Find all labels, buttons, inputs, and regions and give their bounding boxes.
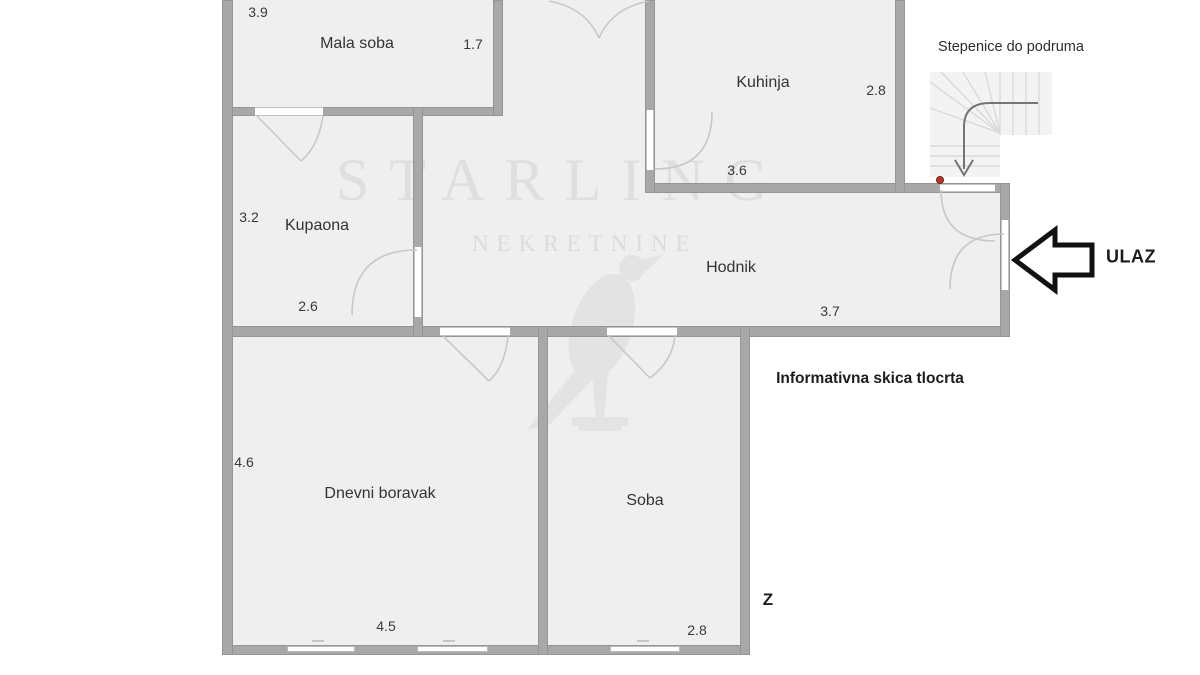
note-label: Informativna skica tlocrta <box>776 370 964 388</box>
wall-soba-right <box>740 326 750 655</box>
stairs-direction-arrow <box>955 103 1038 175</box>
room-label-kupaona: Kupaona <box>285 217 349 235</box>
room-fill-lower <box>222 330 750 655</box>
dim-hodnik-width: 3.7 <box>820 303 839 319</box>
dim-kuhinja-height: 2.8 <box>866 82 885 98</box>
room-label-mala-soba: Mala soba <box>320 35 394 53</box>
floorplan-canvas: STARLING NEKRETNINE <box>0 0 1200 675</box>
window-tick-1 <box>312 640 324 642</box>
window-dnevni-2 <box>417 646 488 652</box>
room-label-soba: Soba <box>626 492 663 510</box>
window-tick-2 <box>443 640 455 642</box>
door-gap-entrance <box>1001 220 1009 290</box>
door-gap-kupaona <box>414 247 422 317</box>
watermark-brand: STARLING <box>336 146 788 215</box>
dim-kupaona-height: 3.2 <box>239 209 258 225</box>
door-gap-soba <box>607 327 677 336</box>
window-dnevni-1 <box>287 646 355 652</box>
room-label-hodnik: Hodnik <box>706 259 756 277</box>
room-label-dnevni-boravak: Dnevni boravak <box>324 485 435 503</box>
dim-kuhinja-width: 3.6 <box>727 162 746 178</box>
dim-dnevni-height: 4.6 <box>234 454 253 470</box>
wall-kuhinja-right <box>895 0 905 193</box>
wall-malasoba-right <box>493 0 503 116</box>
dim-mala-soba-width: 3.9 <box>248 4 267 20</box>
watermark-subtitle: NEKRETNINE <box>472 231 698 257</box>
door-gap-malasoba <box>255 107 323 116</box>
wall-left <box>222 0 233 655</box>
window-tick-3 <box>637 640 649 642</box>
room-fill-hodnik-right <box>895 183 1010 336</box>
door-gap-kuhinja <box>646 110 654 170</box>
entrance-label: ULAZ <box>1106 247 1156 268</box>
stairs-label: Stepenice do podruma <box>938 39 1084 55</box>
wall-soba-left <box>538 326 548 655</box>
dim-dnevni-width: 4.5 <box>376 618 395 634</box>
door-gap-dnevni <box>440 327 510 336</box>
stairs-diagram <box>930 72 1052 177</box>
window-soba <box>610 646 680 652</box>
entrance-arrow-icon <box>1015 230 1092 290</box>
dim-soba-width: 2.8 <box>687 622 706 638</box>
dim-kupaona-width: 2.6 <box>298 298 317 314</box>
door-gap-stairs <box>940 184 995 192</box>
dim-mala-soba-height: 1.7 <box>463 36 482 52</box>
compass-west-label: Z <box>763 590 773 610</box>
room-label-kuhinja: Kuhinja <box>736 74 789 92</box>
